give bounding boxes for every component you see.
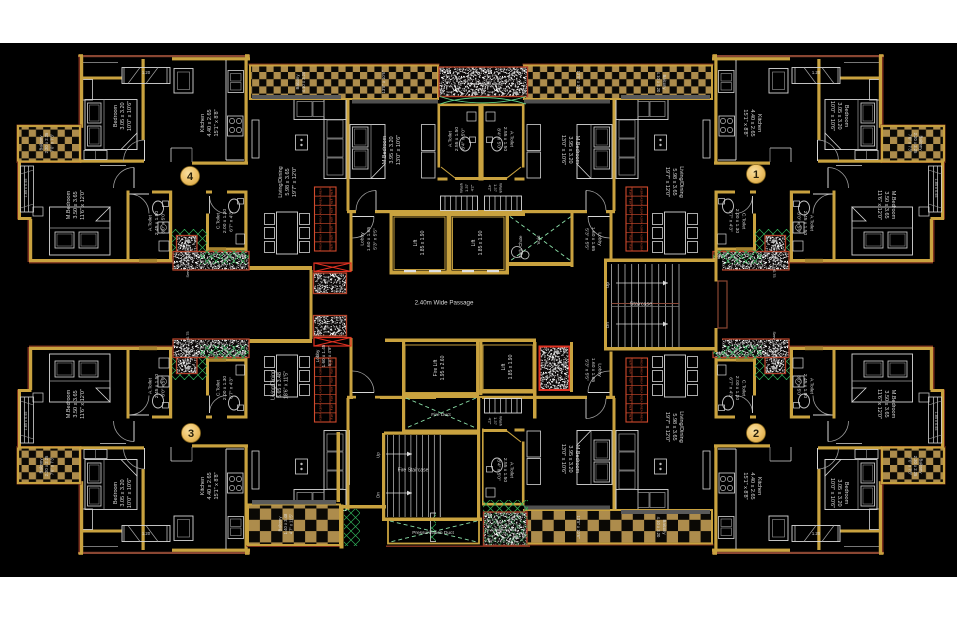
- svg-text:10'0" x 10'6": 10'0" x 10'6": [829, 101, 835, 131]
- svg-text:2.00 x 1.30: 2.00 x 1.30: [222, 376, 228, 400]
- svg-text:AREA: AREA: [319, 188, 323, 196]
- svg-text:2.45 x 1.50: 2.45 x 1.50: [802, 374, 808, 398]
- svg-text:1.37: 1.37: [493, 417, 498, 426]
- svg-text:1.60 x 1.45: 1.60 x 1.45: [321, 344, 326, 367]
- svg-text:2.00 x 1.30: 2.00 x 1.30: [734, 209, 740, 233]
- svg-text:1.60 x 1.65: 1.60 x 1.65: [590, 358, 596, 382]
- svg-text:3.50 x 3.65: 3.50 x 3.65: [73, 191, 79, 218]
- svg-text:Balcony: Balcony: [38, 458, 43, 474]
- svg-text:8'0" x 5'0": 8'0" x 5'0": [160, 375, 166, 397]
- svg-text:Serv. Duct 2.3x0.75: Serv. Duct 2.3x0.75: [772, 331, 776, 364]
- svg-text:1.95 x 2.60: 1.95 x 2.60: [440, 355, 446, 380]
- svg-text:M.Bedroom: M.Bedroom: [574, 136, 580, 165]
- svg-text:2.45 x 1.50: 2.45 x 1.50: [802, 211, 808, 235]
- svg-text:M.Bedroom: M.Bedroom: [890, 191, 896, 220]
- svg-text:2: 2: [753, 428, 759, 440]
- svg-text:Living/Dining: Living/Dining: [278, 166, 284, 198]
- svg-text:6'7" x 4'3": 6'7" x 4'3": [728, 210, 734, 232]
- svg-text:Up: Up: [605, 282, 610, 288]
- svg-text:Wash: Wash: [498, 416, 503, 426]
- svg-text:C.Toilet: C.Toilet: [216, 379, 222, 396]
- svg-text:13'5" x 10'6": 13'5" x 10'6": [576, 71, 581, 94]
- svg-text:4: 4: [187, 171, 194, 183]
- svg-text:AREA: AREA: [319, 216, 323, 224]
- svg-text:5'3" x 5'5": 5'3" x 5'5": [584, 228, 590, 250]
- svg-text:2.00 x 1.30: 2.00 x 1.30: [734, 376, 740, 400]
- svg-text:1.40 x 3.48: 1.40 x 3.48: [283, 513, 288, 534]
- svg-text:5.65 x 3.48: 5.65 x 3.48: [277, 372, 283, 398]
- svg-text:1.20: 1.20: [142, 70, 151, 75]
- svg-text:A.Toilet: A.Toilet: [808, 378, 814, 395]
- svg-text:7'0" x 7'3": 7'0" x 7'3": [907, 457, 912, 476]
- svg-text:3.95 x 3.20: 3.95 x 3.20: [389, 136, 395, 163]
- svg-text:Serv. Duct 2.3x0.75: Serv. Duct 2.3x0.75: [772, 244, 776, 277]
- svg-text:10'0" x 10'6": 10'0" x 10'6": [829, 478, 835, 508]
- svg-text:3: 3: [188, 428, 194, 440]
- svg-text:AREA: AREA: [319, 197, 323, 205]
- svg-text:3.50 x 3.65: 3.50 x 3.65: [883, 390, 889, 417]
- svg-text:A.Toilet: A.Toilet: [508, 462, 514, 479]
- svg-text:5'3" x 5'5": 5'3" x 5'5": [584, 359, 590, 381]
- svg-text:8'0" x 5'0": 8'0" x 5'0": [160, 212, 166, 234]
- svg-text:10'0" x 10'6": 10'0" x 10'6": [127, 478, 133, 508]
- svg-text:2.55 x 1.50: 2.55 x 1.50: [502, 127, 508, 151]
- svg-text:5'3" x 5'5": 5'3" x 5'5": [372, 228, 378, 250]
- svg-text:Fire Lift: Fire Lift: [433, 359, 439, 376]
- svg-text:AREA: AREA: [319, 243, 323, 251]
- svg-text:M.Bedroom: M.Bedroom: [890, 390, 896, 419]
- svg-text:Balcony: Balcony: [662, 75, 667, 91]
- svg-text:Garb. Chute: Garb. Chute: [518, 235, 523, 258]
- svg-text:13'0" x 10'6": 13'0" x 10'6": [560, 135, 566, 165]
- svg-text:sq.ft: sq.ft: [330, 208, 334, 214]
- svg-text:1.85 x 0.45: 1.85 x 0.45: [24, 179, 28, 198]
- svg-text:8'4" x 5'0": 8'4" x 5'0": [496, 459, 502, 481]
- svg-text:11'6" x 12'0": 11'6" x 12'0": [876, 389, 882, 419]
- svg-text:8'0" x 5'0": 8'0" x 5'0": [796, 375, 802, 397]
- svg-text:Dn: Dn: [376, 492, 381, 498]
- svg-text:3.05 x 3.20: 3.05 x 3.20: [120, 479, 126, 506]
- svg-text:Living/Dining: Living/Dining: [678, 166, 684, 198]
- svg-text:6'7" x 4'3": 6'7" x 4'3": [228, 377, 234, 399]
- svg-text:8'0" x 5'0": 8'0" x 5'0": [796, 212, 802, 234]
- svg-text:5.98 x 3.65: 5.98 x 3.65: [285, 168, 291, 195]
- svg-text:2.00 x 1.30: 2.00 x 1.30: [222, 209, 228, 233]
- svg-text:4'2": 4'2": [488, 185, 493, 192]
- svg-text:3.50 x 3.65: 3.50 x 3.65: [883, 191, 889, 218]
- svg-text:Kitchen: Kitchen: [200, 114, 206, 132]
- svg-text:sq.ft: sq.ft: [330, 226, 334, 232]
- svg-text:11'6" x 12'0": 11'6" x 12'0": [876, 190, 882, 220]
- svg-text:Serv. Duct 2.3x0.75: Serv. Duct 2.3x0.75: [186, 331, 190, 364]
- svg-text:19'7" x 12'0": 19'7" x 12'0": [664, 412, 670, 442]
- svg-text:A.Toilet: A.Toilet: [148, 214, 154, 231]
- svg-text:M.Bedroom: M.Bedroom: [382, 135, 388, 164]
- svg-text:C.Toilet: C.Toilet: [740, 380, 746, 397]
- svg-text:Pressurization duct: Pressurization duct: [467, 82, 500, 86]
- svg-text:Balcony: Balcony: [919, 459, 924, 475]
- svg-text:7'0" x 7'3": 7'0" x 7'3": [907, 134, 912, 153]
- svg-text:1.60 x 1.65: 1.60 x 1.65: [590, 227, 596, 251]
- svg-text:M.Bedroom: M.Bedroom: [66, 389, 72, 418]
- svg-text:Living/Dining: Living/Dining: [678, 411, 684, 443]
- svg-text:8'4" x 5'0": 8'4" x 5'0": [460, 128, 466, 150]
- svg-text:4'7" x 11'5": 4'7" x 11'5": [289, 513, 294, 534]
- svg-text:Lobby: Lobby: [360, 232, 366, 246]
- svg-text:Bedroom: Bedroom: [843, 482, 849, 505]
- svg-text:Wash: Wash: [498, 183, 503, 193]
- svg-text:4'2": 4'2": [488, 418, 493, 425]
- svg-text:AREA: AREA: [319, 234, 323, 242]
- svg-text:2.45 x 1.50: 2.45 x 1.50: [154, 374, 160, 398]
- svg-text:1.37: 1.37: [464, 183, 469, 192]
- svg-text:Balcony: Balcony: [662, 520, 667, 536]
- svg-text:15'1" x 8'8": 15'1" x 8'8": [742, 109, 748, 136]
- svg-text:Lobby: Lobby: [596, 232, 602, 246]
- svg-text:Lift: Lift: [501, 363, 507, 370]
- svg-text:1.85 x 0.45: 1.85 x 0.45: [934, 412, 938, 431]
- svg-text:M.Bedroom: M.Bedroom: [574, 445, 580, 474]
- svg-text:4'2": 4'2": [469, 184, 474, 191]
- svg-text:Lobby: Lobby: [315, 349, 320, 362]
- svg-text:4.40 x 2.65: 4.40 x 2.65: [207, 109, 213, 136]
- svg-text:15'1" x 8'8": 15'1" x 8'8": [742, 472, 748, 499]
- svg-text:2.20 x 2.25: 2.20 x 2.25: [913, 456, 918, 477]
- svg-text:Bedroom: Bedroom: [113, 481, 119, 504]
- svg-text:Balcony: Balcony: [38, 135, 43, 151]
- svg-text:sq.ft: sq.ft: [330, 235, 334, 241]
- svg-text:Kitchen: Kitchen: [756, 114, 762, 132]
- svg-text:4.10 x 3.20: 4.10 x 3.20: [656, 517, 661, 538]
- svg-text:4.10 x 3.20: 4.10 x 3.20: [301, 71, 306, 92]
- svg-text:Kitchen: Kitchen: [200, 477, 206, 495]
- svg-text:Wash: Wash: [459, 183, 464, 193]
- svg-text:2.20 x 2.25: 2.20 x 2.25: [44, 132, 49, 153]
- svg-text:13'0" x 10'6": 13'0" x 10'6": [396, 135, 402, 165]
- svg-text:Balcony: Balcony: [277, 516, 282, 532]
- svg-text:Dn: Dn: [605, 322, 610, 328]
- svg-text:3.95 x 3.20: 3.95 x 3.20: [567, 136, 573, 163]
- svg-text:C.Toilet: C.Toilet: [740, 213, 746, 230]
- svg-text:15'1" x 8'8": 15'1" x 8'8": [214, 109, 220, 136]
- svg-text:Staircase: Staircase: [630, 302, 652, 308]
- svg-text:4.10 x 3.20: 4.10 x 3.20: [656, 72, 661, 93]
- svg-text:19'7" x 12'0": 19'7" x 12'0": [292, 167, 298, 197]
- svg-text:3.05 x 3.20: 3.05 x 3.20: [836, 102, 842, 129]
- svg-text:sq.ft: sq.ft: [330, 217, 334, 223]
- svg-text:6'7" x 4'3": 6'7" x 4'3": [728, 377, 734, 399]
- svg-text:Serv. Duct 2.3x0.75: Serv. Duct 2.3x0.75: [186, 244, 190, 277]
- svg-text:7'0" x 7'3": 7'0" x 7'3": [50, 456, 55, 475]
- svg-text:Pressurization Duct: Pressurization Duct: [412, 530, 454, 536]
- svg-text:5.98 x 3.65: 5.98 x 3.65: [671, 168, 677, 195]
- svg-text:Bedroom: Bedroom: [113, 104, 119, 127]
- svg-text:AREA: AREA: [319, 225, 323, 233]
- svg-text:3.50 x 3.65: 3.50 x 3.65: [73, 390, 79, 417]
- svg-text:4.40 x 2.65: 4.40 x 2.65: [749, 109, 755, 136]
- svg-text:13'0" x 10'6": 13'0" x 10'6": [560, 444, 566, 474]
- svg-text:8'4" x 5'0": 8'4" x 5'0": [496, 128, 502, 150]
- svg-text:5'3" x 4'9": 5'3" x 4'9": [327, 346, 332, 366]
- svg-text:2.20 x 2.25: 2.20 x 2.25: [913, 133, 918, 154]
- svg-text:18'6" x 11'5": 18'6" x 11'5": [284, 371, 290, 399]
- svg-text:3.05 x 3.20: 3.05 x 3.20: [836, 479, 842, 506]
- svg-text:11'6" x 12'0": 11'6" x 12'0": [80, 190, 86, 220]
- svg-text:19'7" x 12'0": 19'7" x 12'0": [664, 167, 670, 197]
- svg-text:1.20: 1.20: [812, 531, 821, 536]
- svg-text:sq.ft: sq.ft: [330, 198, 334, 204]
- svg-text:2.45 x 1.50: 2.45 x 1.50: [154, 211, 160, 235]
- svg-text:1.37: 1.37: [493, 184, 498, 193]
- svg-text:Balcony: Balcony: [919, 136, 924, 152]
- svg-text:1.85 x 1.90: 1.85 x 1.90: [508, 354, 514, 379]
- svg-text:Bedroom: Bedroom: [843, 105, 849, 128]
- svg-text:Fire Duct: Fire Duct: [431, 412, 451, 418]
- svg-text:7'0" x 7'3": 7'0" x 7'3": [50, 133, 55, 152]
- svg-text:Lobby: Lobby: [596, 363, 602, 377]
- svg-text:1.85 x 0.45: 1.85 x 0.45: [934, 179, 938, 198]
- svg-text:Void: Void: [536, 235, 541, 244]
- svg-text:Lift: Lift: [413, 239, 419, 246]
- svg-text:3.95 x 3.20: 3.95 x 3.20: [567, 445, 573, 472]
- svg-text:A.Toilet: A.Toilet: [808, 215, 814, 232]
- svg-text:M.Bedroom: M.Bedroom: [66, 190, 72, 219]
- svg-text:3.05 x 3.20: 3.05 x 3.20: [120, 102, 126, 129]
- svg-text:4.40 x 2.65: 4.40 x 2.65: [207, 472, 213, 499]
- svg-text:2.55 x 1.50: 2.55 x 1.50: [454, 127, 460, 151]
- svg-text:11'6" x 12'0": 11'6" x 12'0": [80, 389, 86, 419]
- svg-text:1: 1: [753, 169, 759, 181]
- svg-text:4.40 x 2.65: 4.40 x 2.65: [749, 472, 755, 499]
- svg-text:5.98 x 3.65: 5.98 x 3.65: [671, 413, 677, 440]
- svg-text:2.40m Wide Passage: 2.40m Wide Passage: [415, 300, 474, 307]
- svg-text:A.Toilet: A.Toilet: [148, 377, 154, 394]
- svg-text:Up: Up: [376, 452, 381, 458]
- svg-text:Lift: Lift: [471, 239, 477, 246]
- svg-text:Kitchen: Kitchen: [756, 477, 762, 495]
- svg-text:Fire Staircase: Fire Staircase: [398, 468, 429, 474]
- svg-text:10'0" x 10'6": 10'0" x 10'6": [127, 101, 133, 131]
- svg-text:1.20: 1.20: [812, 70, 821, 75]
- svg-text:sq.ft: sq.ft: [330, 244, 334, 250]
- svg-text:1.85 x 0.45: 1.85 x 0.45: [24, 412, 28, 431]
- svg-text:1.20: 1.20: [142, 531, 151, 536]
- svg-text:sq.ft: sq.ft: [330, 189, 334, 195]
- svg-text:15'1" x 8'8": 15'1" x 8'8": [214, 472, 220, 499]
- svg-text:A.Toilet: A.Toilet: [448, 130, 454, 147]
- svg-text:Service duct: Service duct: [494, 527, 517, 532]
- svg-text:Living/Dining: Living/Dining: [270, 370, 276, 400]
- svg-text:1.85 x 1.90: 1.85 x 1.90: [420, 230, 426, 255]
- svg-text:6'7" x 4'3": 6'7" x 4'3": [228, 210, 234, 232]
- svg-text:1.85 x 1.90: 1.85 x 1.90: [478, 230, 484, 255]
- svg-text:A.Toilet: A.Toilet: [508, 131, 514, 148]
- svg-text:2.20 x 2.25: 2.20 x 2.25: [44, 455, 49, 476]
- svg-text:Balcony: Balcony: [295, 74, 300, 90]
- svg-text:2.55 x 1.50: 2.55 x 1.50: [502, 458, 508, 482]
- svg-text:13'5" x 10'6": 13'5" x 10'6": [576, 516, 581, 539]
- svg-text:13'5" x 10'6": 13'5" x 10'6": [381, 70, 386, 93]
- svg-text:1.60 x 1.65: 1.60 x 1.65: [366, 227, 372, 251]
- svg-text:C.Toilet: C.Toilet: [216, 212, 222, 229]
- svg-text:AREA: AREA: [319, 206, 323, 214]
